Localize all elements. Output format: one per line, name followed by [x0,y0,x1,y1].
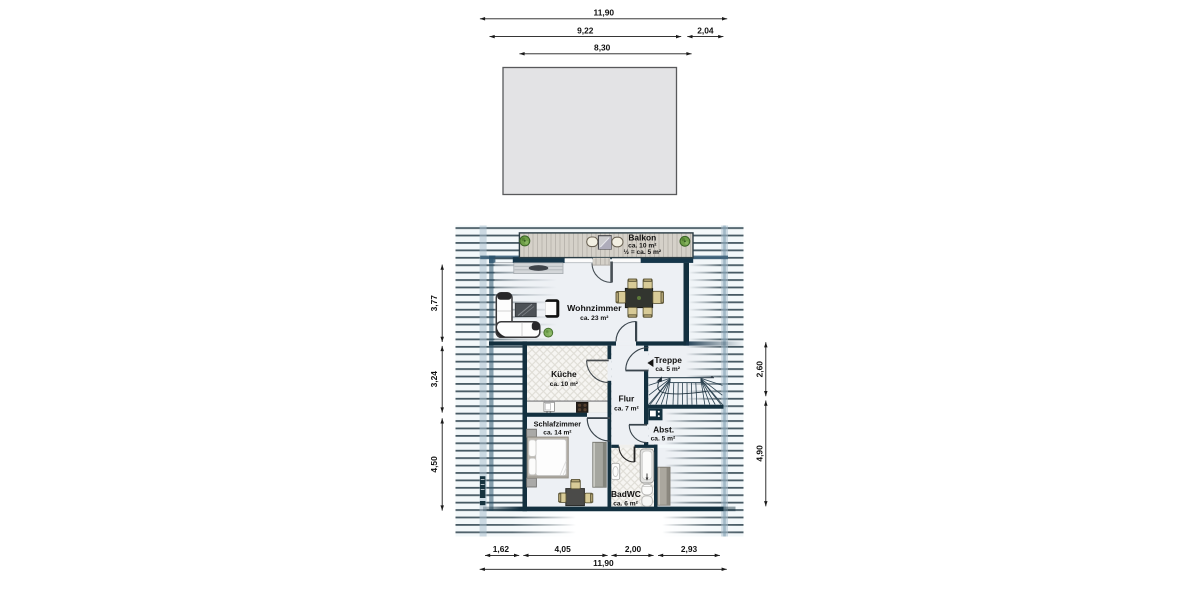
svg-text:2,04: 2,04 [697,25,714,35]
svg-text:11,90: 11,90 [594,8,615,18]
svg-text:8,30: 8,30 [594,43,611,53]
svg-text:ca. 10 m²: ca. 10 m² [550,381,579,388]
svg-text:ca. 6 m²: ca. 6 m² [613,500,638,507]
svg-text:Treppe: Treppe [654,355,682,365]
svg-text:2,00: 2,00 [625,544,642,554]
svg-text:4,05: 4,05 [554,544,571,554]
svg-text:2,60: 2,60 [755,361,765,378]
svg-text:Küche: Küche [551,369,577,379]
svg-text:ca. 7 m²: ca. 7 m² [614,405,639,412]
svg-text:Balkon: Balkon [628,232,656,242]
svg-text:Flur: Flur [618,394,635,404]
svg-text:½ = ca. 5 m²: ½ = ca. 5 m² [624,248,662,256]
svg-text:1,62: 1,62 [493,544,510,554]
svg-text:ca. 5 m²: ca. 5 m² [651,436,676,443]
svg-text:ca. 14 m²: ca. 14 m² [543,429,572,436]
svg-text:3,77: 3,77 [429,295,439,312]
svg-text:Wohnzimmer: Wohnzimmer [567,303,622,313]
svg-text:BadWC: BadWC [611,489,641,499]
svg-text:ca. 5 m²: ca. 5 m² [655,366,680,373]
svg-text:ca. 23 m²: ca. 23 m² [580,315,609,322]
svg-text:2,93: 2,93 [681,544,698,554]
svg-text:3,24: 3,24 [429,371,439,388]
svg-text:Abst.: Abst. [653,424,674,434]
svg-text:4,50: 4,50 [429,456,439,473]
svg-text:4,90: 4,90 [755,445,765,462]
svg-text:Schlafzimmer: Schlafzimmer [534,420,582,429]
svg-text:11,90: 11,90 [593,558,614,568]
svg-text:9,22: 9,22 [577,25,594,35]
